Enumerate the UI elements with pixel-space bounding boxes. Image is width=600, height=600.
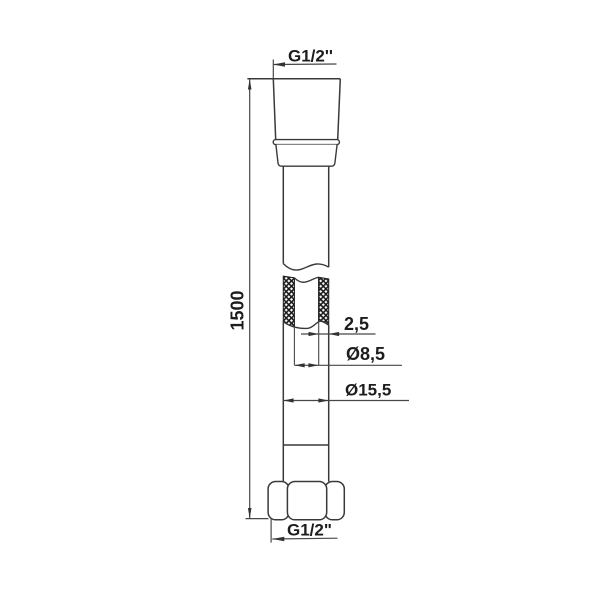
svg-text:Ø15,5: Ø15,5 bbox=[345, 381, 391, 400]
svg-text:G1/2'': G1/2'' bbox=[288, 47, 333, 66]
svg-text:1500: 1500 bbox=[228, 290, 248, 330]
svg-text:G1/2": G1/2" bbox=[287, 521, 332, 540]
svg-text:Ø8,5: Ø8,5 bbox=[346, 344, 385, 364]
svg-text:2,5: 2,5 bbox=[344, 314, 369, 334]
